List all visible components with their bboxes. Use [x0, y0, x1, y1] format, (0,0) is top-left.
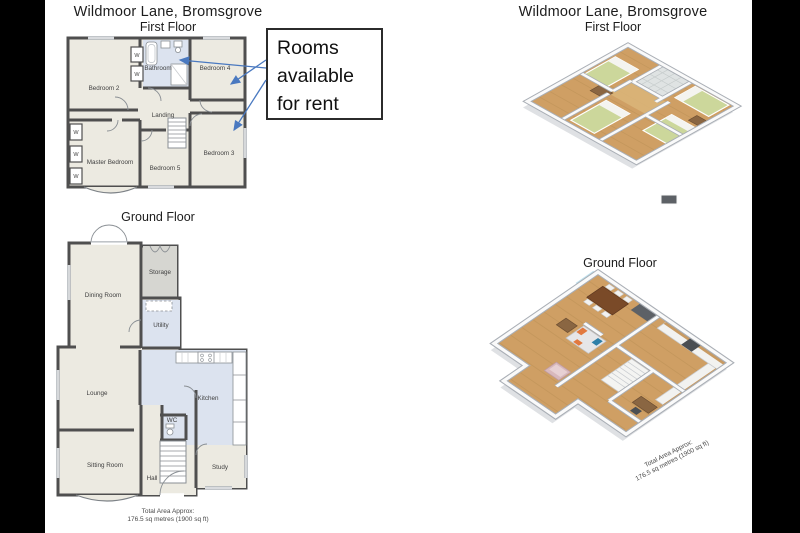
plans-svg: Bedroom 2 Bathroom Bedroom 4 Landing Mas… — [0, 0, 800, 533]
room-label-bedroom-2: Bedroom 2 — [89, 85, 120, 92]
room-label-bedroom-3: Bedroom 3 — [204, 150, 235, 157]
room-label-kitchen: Kitchen — [197, 395, 219, 402]
room-label-dining: Dining Room — [85, 292, 121, 299]
wardrobe-label-4: W — [73, 152, 79, 158]
wardrobe-label-2: W — [134, 72, 140, 78]
screenshot-canvas: Wildmoor Lane, Bromsgrove First Floor Wi… — [0, 0, 800, 533]
first-floor-plan-2d: Bedroom 2 Bathroom Bedroom 4 Landing Mas… — [68, 37, 246, 193]
room-label-sitting: Sitting Room — [87, 462, 123, 469]
room-label-bathroom: Bathroom — [144, 65, 171, 72]
room-label-study: Study — [212, 464, 229, 471]
wardrobe-label-5: W — [73, 174, 79, 180]
first-floor-render-3d — [520, 45, 741, 204]
ground-floor-plan-2d: Dining Room Storage Utility Lounge Kitch… — [57, 225, 247, 501]
room-label-utility: Utility — [153, 322, 169, 329]
room-label-wc: WC — [167, 417, 178, 424]
ground-floor-render-3d — [462, 270, 733, 456]
room-label-hall: Hall — [147, 475, 158, 482]
room-label-lounge: Lounge — [86, 390, 108, 397]
room-label-bedroom-4: Bedroom 4 — [200, 65, 231, 72]
wardrobe-label-3: W — [73, 130, 79, 136]
room-label-bedroom-5: Bedroom 5 — [150, 165, 181, 172]
room-label-landing: Landing — [152, 112, 175, 119]
room-label-storage: Storage — [149, 269, 172, 276]
wardrobe-label-1: W — [134, 53, 140, 59]
room-label-master-bedroom: Master Bedroom — [87, 159, 134, 166]
